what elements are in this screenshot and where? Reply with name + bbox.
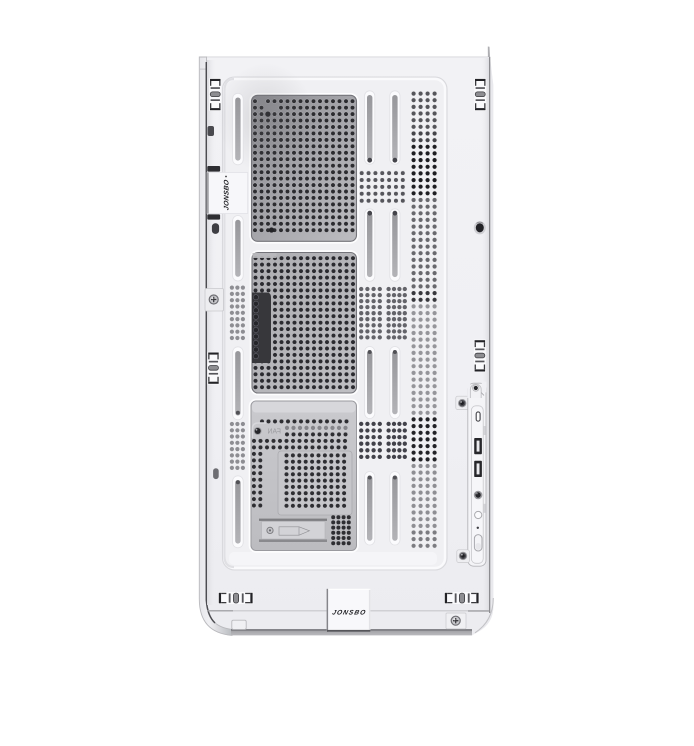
svg-text:JONSBO: JONSBO [331,609,367,616]
svg-text:JONSBO: JONSBO [224,179,231,211]
svg-text:FAN: FAN [267,429,281,436]
